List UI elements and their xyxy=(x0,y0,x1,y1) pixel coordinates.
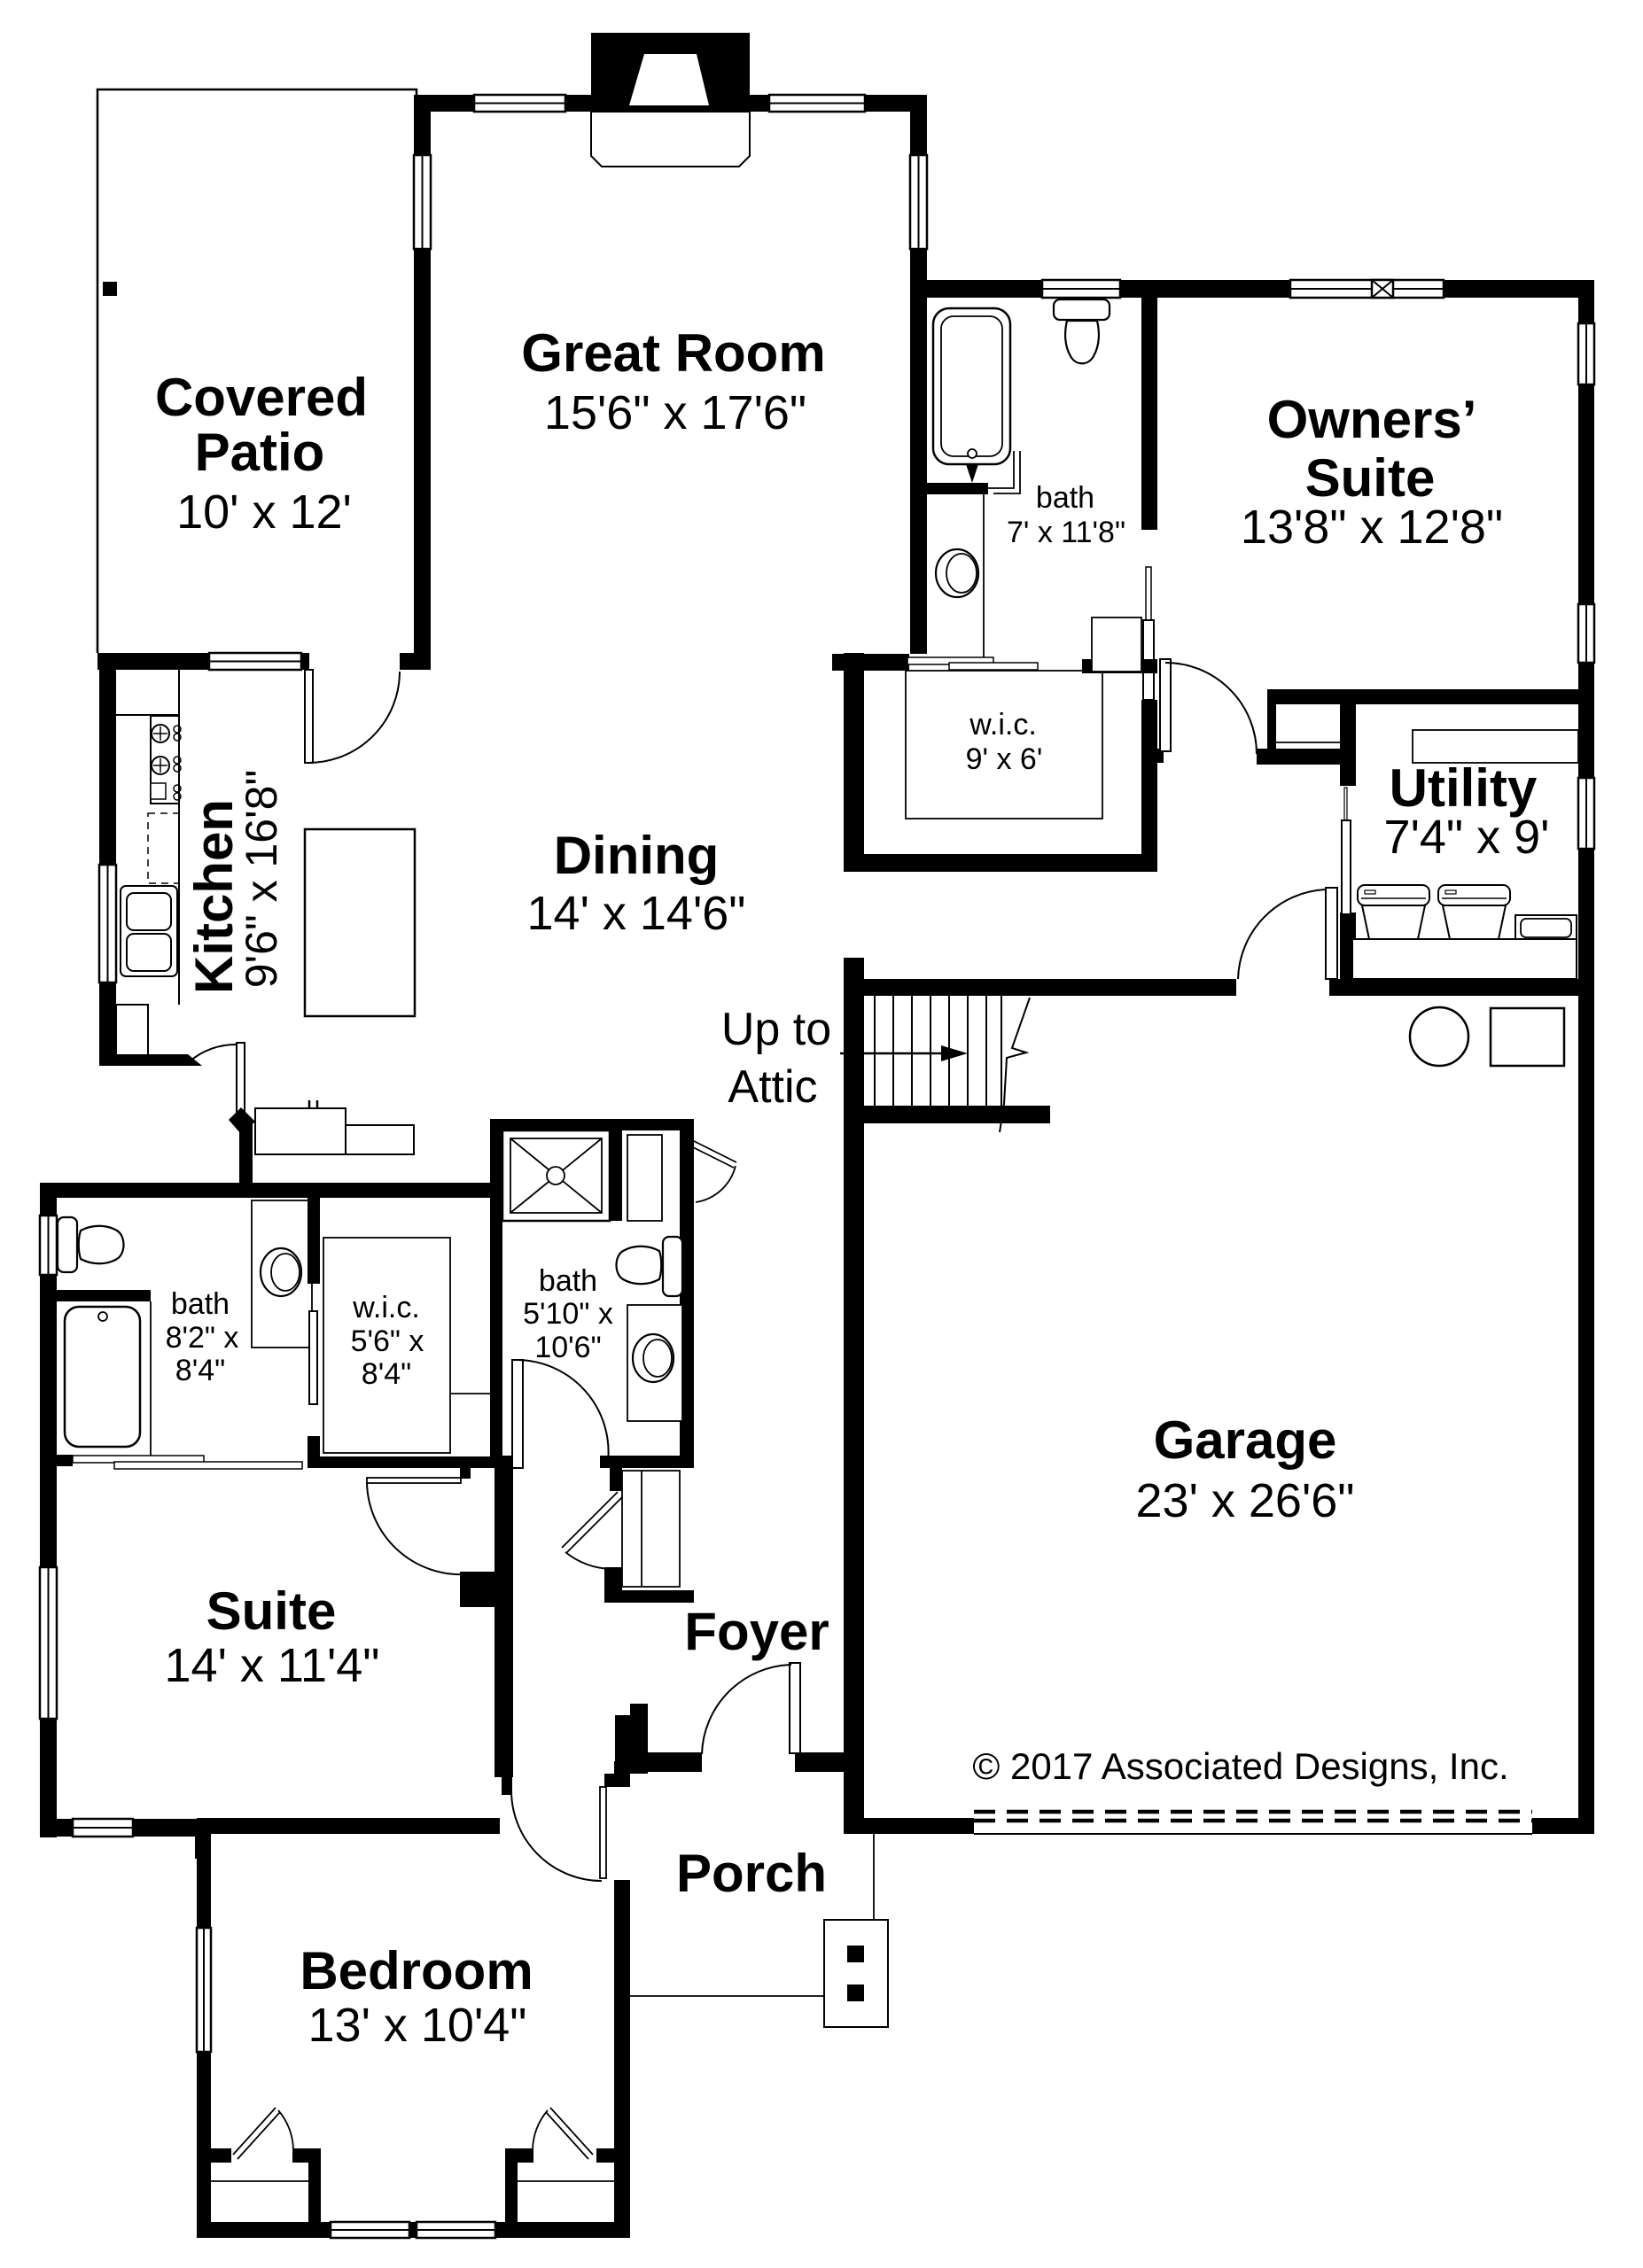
svg-text:8'2" x: 8'2" x xyxy=(166,1321,239,1355)
svg-text:Kitchen: Kitchen xyxy=(184,799,244,994)
svg-text:9'6" x 16'8": 9'6" x 16'8" xyxy=(237,770,286,988)
svg-text:Foyer: Foyer xyxy=(684,1602,829,1661)
svg-text:10' x 12': 10' x 12' xyxy=(176,485,352,539)
svg-text:14' x 11'4": 14' x 11'4" xyxy=(165,1639,380,1692)
svg-text:Utility: Utility xyxy=(1390,758,1538,818)
svg-text:Suite: Suite xyxy=(1305,448,1436,508)
svg-text:© 2017 Associated Designs, Inc: © 2017 Associated Designs, Inc. xyxy=(972,1745,1508,1787)
svg-text:7'4" x 9': 7'4" x 9' xyxy=(1384,811,1550,864)
svg-text:Great Room: Great Room xyxy=(521,323,825,383)
svg-text:Bedroom: Bedroom xyxy=(300,1941,533,2000)
svg-text:Up to: Up to xyxy=(721,1004,831,1055)
svg-text:Covered: Covered xyxy=(155,368,368,427)
svg-text:bath: bath xyxy=(1036,481,1094,515)
svg-text:8'4": 8'4" xyxy=(362,1357,411,1391)
svg-text:5'6" x: 5'6" x xyxy=(351,1324,424,1358)
svg-text:Suite: Suite xyxy=(206,1581,337,1641)
svg-text:Porch: Porch xyxy=(676,1844,827,1903)
svg-text:Garage: Garage xyxy=(1154,1410,1337,1470)
svg-text:9' x 6': 9' x 6' xyxy=(966,742,1043,776)
svg-text:Attic: Attic xyxy=(728,1061,817,1113)
svg-text:7' x 11'8": 7' x 11'8" xyxy=(1007,516,1125,549)
svg-text:15'6" x 17'6": 15'6" x 17'6" xyxy=(544,386,806,439)
svg-text:14' x 14'6": 14' x 14'6" xyxy=(527,887,746,940)
svg-text:w.i.c.: w.i.c. xyxy=(352,1291,420,1324)
svg-text:bath: bath xyxy=(171,1287,230,1321)
svg-text:Dining: Dining xyxy=(554,826,720,885)
svg-text:Owners’: Owners’ xyxy=(1267,390,1477,449)
svg-text:bath: bath xyxy=(539,1264,597,1298)
svg-text:Patio: Patio xyxy=(195,423,325,482)
svg-text:5'10" x: 5'10" x xyxy=(523,1297,613,1331)
svg-text:13'8" x 12'8": 13'8" x 12'8" xyxy=(1241,501,1503,554)
svg-text:10'6": 10'6" xyxy=(534,1331,601,1364)
svg-text:8'4": 8'4" xyxy=(175,1354,225,1387)
svg-text:w.i.c.: w.i.c. xyxy=(969,708,1037,742)
svg-text:23' x 26'6": 23' x 26'6" xyxy=(1136,1474,1355,1527)
svg-text:13' x 10'4": 13' x 10'4" xyxy=(308,1999,527,2052)
